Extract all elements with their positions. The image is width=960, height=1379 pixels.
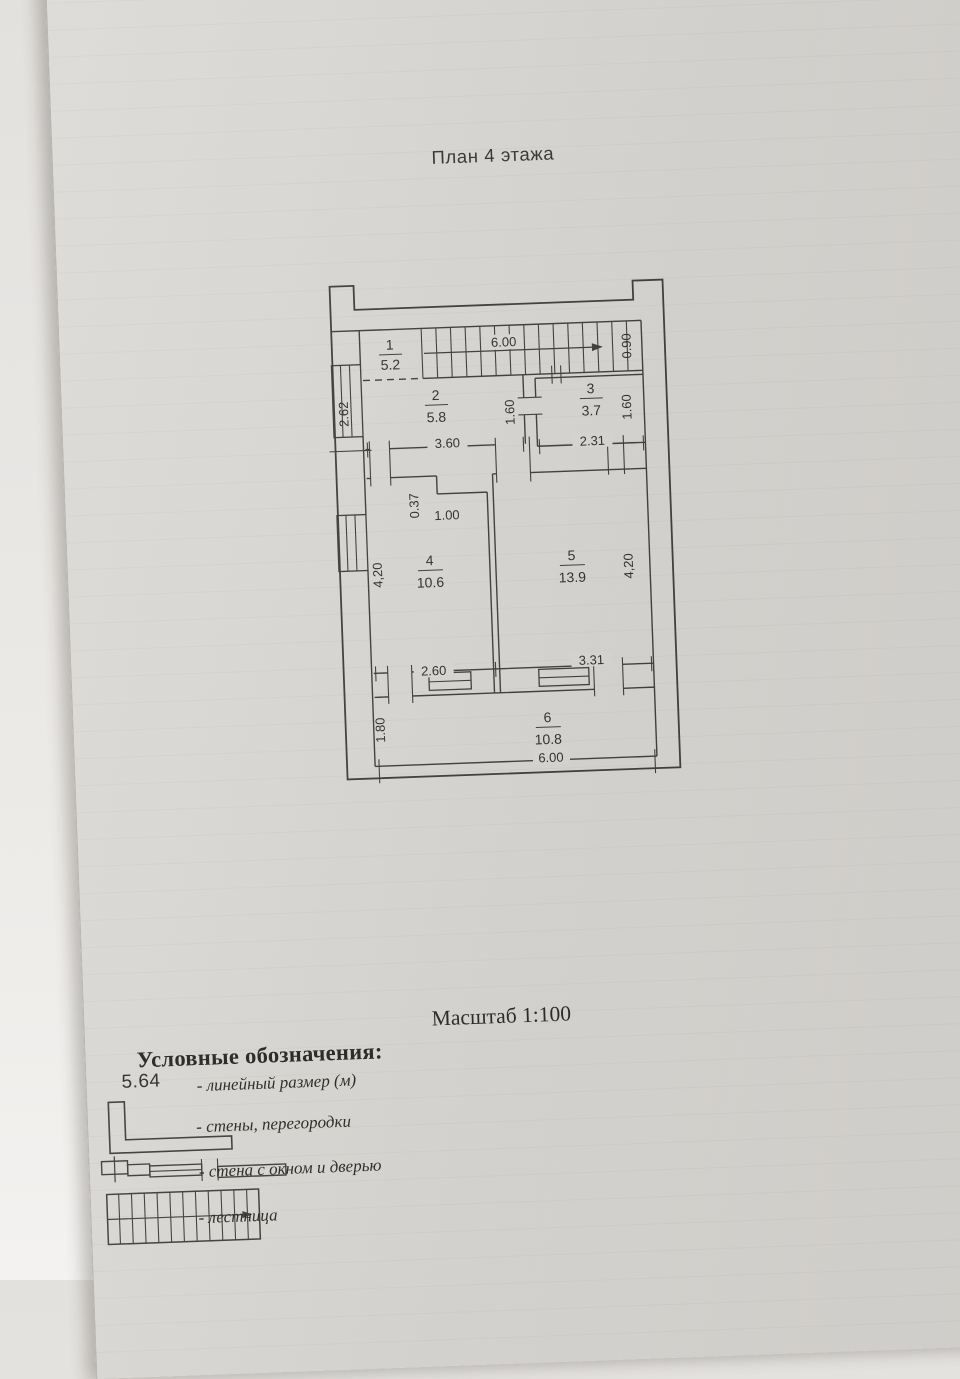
room-2-number: 2 bbox=[431, 387, 440, 403]
room-1-number: 1 bbox=[386, 336, 395, 352]
dim-balcony-depth: 1.80 bbox=[372, 717, 388, 743]
legend-heading: Условные обозначения: bbox=[136, 1038, 383, 1073]
dim-notch-depth: 0.37 bbox=[406, 493, 422, 519]
legend-walls-label: - стены, перегородки bbox=[196, 1112, 351, 1138]
room-5-area: 13.9 bbox=[558, 569, 586, 586]
dim-balcony-width: 6.00 bbox=[538, 750, 564, 766]
document-sheet: План 4 этажа bbox=[44, 0, 960, 1379]
room-3-number: 3 bbox=[586, 380, 595, 396]
dim-notch-width: 1.00 bbox=[434, 507, 460, 523]
room-1-area: 5.2 bbox=[380, 356, 400, 373]
dim-hall-height: 2.62 bbox=[336, 401, 352, 427]
room-6-number: 6 bbox=[543, 709, 552, 725]
legend-dimension-example: 5.64 bbox=[121, 1070, 161, 1093]
dim-stair-length: 6.00 bbox=[491, 334, 517, 350]
dim-room5-width: 3.31 bbox=[578, 652, 604, 668]
page-title: План 4 этажа bbox=[383, 141, 604, 171]
dim-room4-width: 2.60 bbox=[421, 663, 447, 679]
dim-room4-height: 4,20 bbox=[370, 562, 386, 588]
dim-room2-width: 3.60 bbox=[434, 435, 460, 451]
legend-linear-label: - линейный размер (м) bbox=[196, 1070, 356, 1096]
room-labels: 1 5.2 2 5.8 3 3.7 4 10.6 5 13.9 6 10.8 bbox=[378, 329, 615, 753]
legend-stairs-label: - лестница bbox=[198, 1205, 278, 1228]
room-3-area: 3.7 bbox=[581, 402, 601, 419]
scale-label: Масштаб 1:100 bbox=[391, 1000, 612, 1033]
rooms-2-3-walls bbox=[327, 362, 647, 497]
dim-room3-width: 2.31 bbox=[579, 433, 605, 449]
room-4-number: 4 bbox=[425, 552, 434, 568]
dim-stair-width: 0.90 bbox=[618, 333, 634, 359]
room-2-area: 5.8 bbox=[426, 409, 446, 426]
dim-room3-height: 1.60 bbox=[619, 394, 635, 420]
floor-plan-drawing: 1 5.2 2 5.8 3 3.7 4 10.6 5 13.9 6 10.8 6… bbox=[321, 267, 690, 804]
room-4-area: 10.6 bbox=[417, 574, 445, 591]
inner-walls bbox=[331, 320, 657, 767]
dim-room2-height: 1.60 bbox=[502, 399, 518, 425]
room-5-number: 5 bbox=[567, 547, 576, 563]
dimension-labels: 6.00 0.90 2.62 3.60 1.60 2.31 1.60 0.37 … bbox=[334, 330, 650, 773]
room-6-area: 10.8 bbox=[534, 731, 562, 748]
dim-room5-height: 4,20 bbox=[621, 553, 637, 579]
